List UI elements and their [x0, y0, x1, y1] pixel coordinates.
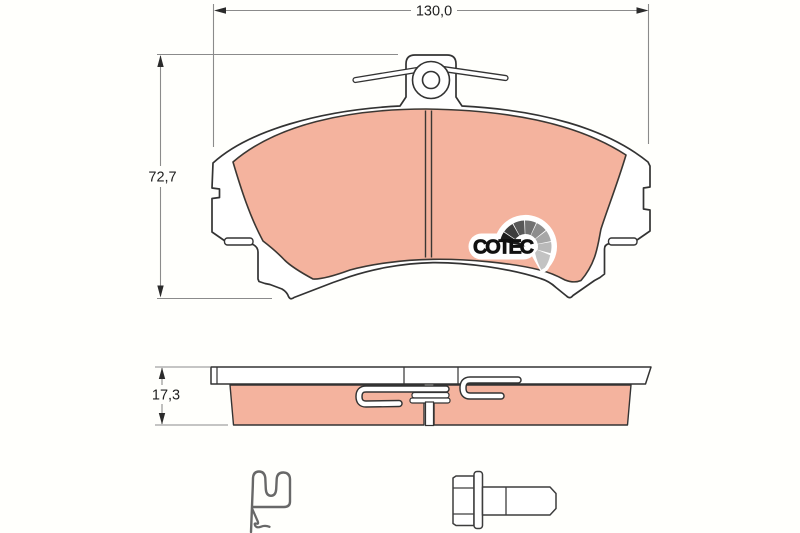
svg-text:72,7: 72,7	[148, 170, 176, 186]
svg-text:130,0: 130,0	[416, 4, 452, 20]
svg-text:17,3: 17,3	[152, 388, 180, 404]
svg-text:COTEC: COTEC	[473, 237, 534, 259]
